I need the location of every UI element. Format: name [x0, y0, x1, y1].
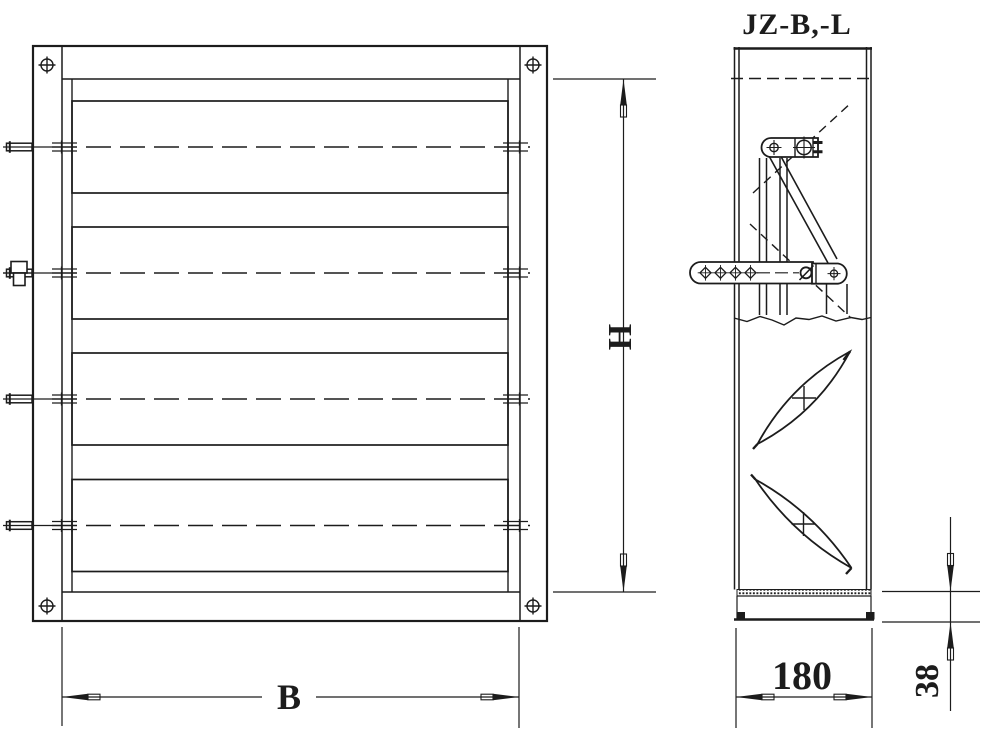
blade-axle-pin — [3, 262, 530, 286]
dimension-h: H — [553, 79, 656, 592]
bottom-channel — [734, 590, 875, 620]
blade-axles — [3, 141, 530, 533]
side-view — [690, 47, 875, 620]
corner-screw-icon — [39, 57, 542, 615]
technical-drawing-page: H B 180 38 JZ-B,-L — [0, 0, 1000, 729]
linkage-mechanism — [690, 102, 871, 325]
arrowhead-left — [62, 694, 88, 701]
dimension-depth: 180 — [736, 628, 872, 728]
drawing-title: JZ-B,-L — [742, 8, 852, 41]
upper-crank — [762, 137, 823, 159]
channel-height-dimension-label: 38 — [909, 664, 946, 698]
damper-blades — [72, 101, 508, 572]
blade-axle-pin — [3, 519, 530, 532]
dimension-b: B — [62, 627, 519, 728]
front-view — [3, 46, 547, 621]
dimension-channel-height: 38 — [882, 517, 980, 711]
technical-drawing-canvas: H B 180 38 JZ-B,-L — [0, 0, 1000, 729]
front-frame — [33, 46, 547, 621]
link-bar — [769, 151, 837, 263]
arrowhead-right — [846, 694, 872, 701]
arrowhead-up — [620, 79, 627, 105]
depth-dimension-label: 180 — [772, 653, 832, 698]
arrowhead-right — [493, 694, 519, 701]
blade-profiles — [751, 352, 852, 575]
width-dimension-label: B — [277, 677, 301, 717]
arrowhead-left — [736, 694, 762, 701]
blade-axle-pin — [3, 393, 530, 406]
arrowhead-down — [947, 566, 954, 592]
adjustment-nut — [3, 262, 33, 286]
lower-clevis — [800, 264, 848, 315]
handle-bar — [690, 262, 813, 284]
blade-profile — [751, 475, 852, 575]
arrowhead-down — [620, 566, 627, 592]
arrowhead-up — [947, 622, 954, 648]
height-dimension-label: H — [602, 324, 639, 350]
blade-axle-pin — [3, 141, 530, 154]
break-line — [734, 316, 871, 325]
blade-profile — [753, 352, 850, 450]
